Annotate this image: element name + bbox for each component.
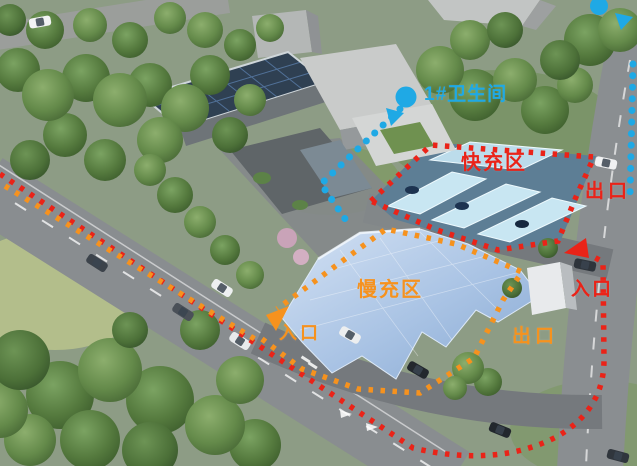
fast-entrance-arrow-icon (564, 238, 589, 258)
slow-entrance-label: 入口 (279, 324, 321, 342)
site-plan-rendering: 1#卫生间 快充区 出口 入口 慢充区 入口 出口 (0, 0, 637, 466)
fast-exit-label: 出口 (585, 182, 631, 201)
slow-route-dotted-line (5, 186, 258, 341)
fast-route-dotted-line (0, 174, 604, 456)
fast-zone-label: 快充区 (461, 153, 527, 173)
pedestrian-route-right-dotted-line (630, 64, 633, 196)
restroom-marker-dot (396, 87, 417, 108)
restroom2-marker-arrow-icon (615, 13, 633, 30)
fast-entrance-label: 入口 (571, 280, 613, 299)
pedestrian-route-dotted-line (321, 109, 400, 226)
annotation-overlay (0, 0, 637, 466)
slow-exit-label: 出口 (512, 327, 558, 346)
restroom2-marker-dot (590, 0, 608, 15)
slow-zone-label: 慢充区 (357, 280, 423, 300)
restroom-label: 1#卫生间 (424, 85, 507, 104)
slow-zone-boundary (262, 229, 522, 393)
